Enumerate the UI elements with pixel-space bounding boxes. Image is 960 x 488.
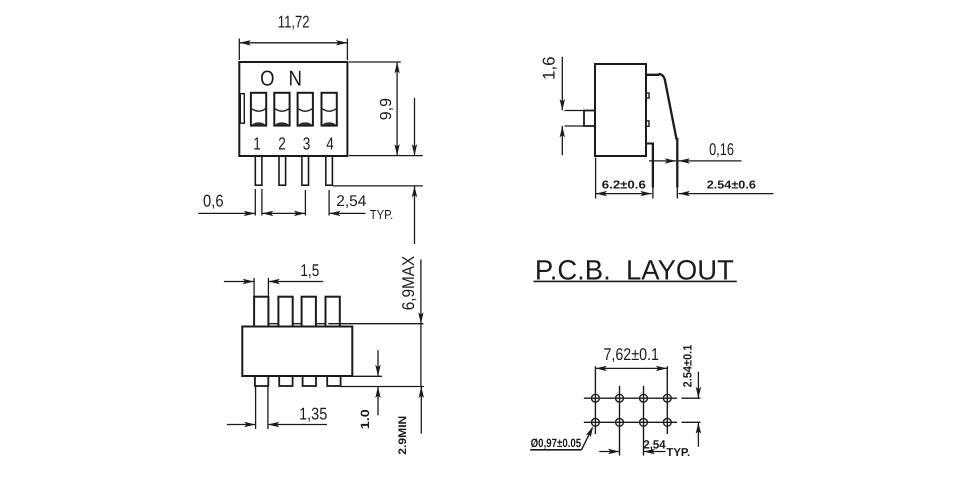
svg-text:0,6: 0,6 bbox=[203, 191, 224, 210]
svg-text:11,72: 11,72 bbox=[278, 13, 310, 32]
svg-text:9,9: 9,9 bbox=[378, 98, 395, 120]
svg-text:2.54±0.6: 2.54±0.6 bbox=[707, 180, 756, 192]
svg-text:1,5: 1,5 bbox=[300, 261, 319, 280]
svg-text:0,16: 0,16 bbox=[709, 140, 734, 159]
svg-text:1: 1 bbox=[253, 133, 261, 153]
svg-text:7,62±0.1: 7,62±0.1 bbox=[603, 345, 658, 364]
svg-text:1,6: 1,6 bbox=[539, 56, 558, 80]
svg-text:2,54: 2,54 bbox=[643, 437, 665, 451]
svg-text:2: 2 bbox=[278, 133, 286, 153]
svg-text:1,35: 1,35 bbox=[299, 404, 327, 423]
svg-text:O: O bbox=[260, 66, 274, 90]
svg-text:6.2±0.6: 6.2±0.6 bbox=[602, 180, 646, 192]
svg-text:6,9MAX: 6,9MAX bbox=[399, 256, 418, 310]
svg-text:2.54±0.1: 2.54±0.1 bbox=[680, 344, 694, 387]
svg-text:N: N bbox=[289, 66, 303, 90]
svg-text:TYP.: TYP. bbox=[666, 447, 690, 459]
svg-text:3: 3 bbox=[303, 133, 311, 153]
svg-text:4: 4 bbox=[326, 133, 334, 153]
svg-text:1.0: 1.0 bbox=[358, 409, 372, 429]
svg-text:2.9MIN: 2.9MIN bbox=[397, 416, 409, 455]
svg-text:Ø0,97±0.05: Ø0,97±0.05 bbox=[531, 436, 582, 450]
svg-text:TYP.: TYP. bbox=[370, 207, 393, 222]
svg-text:2,54: 2,54 bbox=[336, 193, 367, 210]
